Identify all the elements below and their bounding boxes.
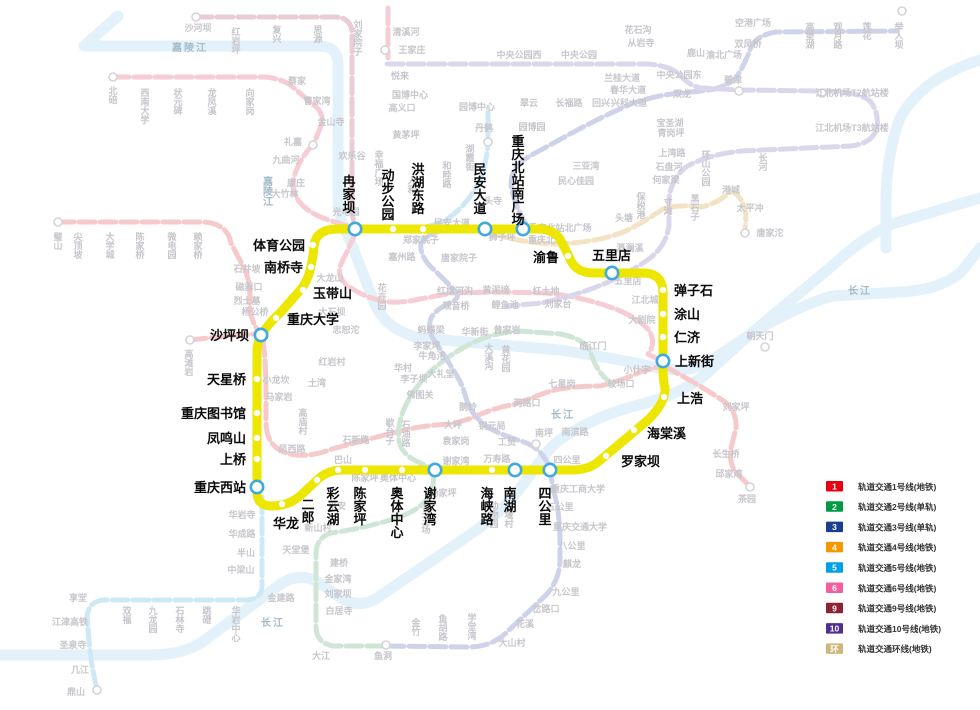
bg-station-circle (93, 686, 101, 694)
bg-station-label: 嘉州路 (387, 251, 416, 262)
bg-station-label: 半山 (237, 547, 255, 558)
loop-station-label-弹子石: 弹子石 (674, 283, 713, 298)
loop-station-label-重庆西站: 重庆西站 (194, 480, 246, 495)
bg-station-label: 翠云 (520, 98, 538, 108)
loop-interchange-dot-南湖[interactable] (509, 464, 521, 476)
legend-line-label: 轨道交通1号线(地铁) (858, 482, 937, 492)
legend-badge-number: 2 (832, 502, 837, 512)
bg-station-circle (532, 440, 540, 448)
bg-station-label: 鱼胡路 (438, 613, 448, 642)
bg-station-label: 黑石子 (689, 194, 699, 222)
bg-station-label: 大山村 (498, 637, 525, 648)
bg-station-label: 享堂 (69, 592, 87, 603)
loop-station-dot-陈家坪[interactable] (362, 467, 368, 473)
bg-station-label: 华岩寺 (228, 509, 255, 520)
loop-station-dot-奥体中心[interactable] (399, 467, 405, 473)
bg-station-circle (746, 483, 754, 491)
bg-station-label: 江北机场T2航站楼 (815, 87, 889, 98)
loop-station-dot-彩云湖[interactable] (335, 467, 341, 473)
bg-station-label: 大龙山 (316, 272, 343, 283)
loop-station-dot-仁济[interactable] (660, 334, 666, 340)
loop-station-dot-罗家坝[interactable] (603, 453, 609, 459)
loop-station-label-仁济: 仁济 (674, 330, 701, 345)
bg-station-label: 重庆交通大学 (553, 521, 607, 532)
loop-station-label-罗家坝: 罗家坝 (621, 454, 660, 469)
bg-station-label: 碧津 (723, 74, 742, 85)
bg-station-label: 鼎山 (67, 686, 85, 697)
legend-item-环: 环轨道交通环线(地铁) (826, 643, 932, 654)
bg-station-circle (382, 641, 390, 649)
bg-station-label: 金建路 (266, 592, 295, 603)
legend-badge-number: 6 (832, 583, 837, 593)
bg-station-label: 两路口 (513, 397, 540, 408)
loop-station-label-民安大道: 民安大道 (473, 162, 486, 216)
bg-station-label: 北碚 (108, 85, 117, 105)
loop-station-dot-二郎[interactable] (314, 477, 320, 483)
bg-station-label: 渝北广场 (706, 49, 742, 60)
bg-station-label: 礼嘉 (284, 136, 302, 147)
bg-station-label: 大坪 (444, 419, 462, 430)
bg-station-label: 石林寺 (174, 606, 185, 634)
bg-station-label: 从岩寺 (627, 37, 654, 48)
loop-station-label-南湖: 南湖 (503, 486, 516, 514)
bg-station-label: 高义口 (388, 102, 415, 113)
bg-station-label: 中央公园西 (496, 49, 541, 60)
loop-station-dot-渝鲁[interactable] (565, 253, 571, 259)
bg-station-label: 学堂湾 (467, 612, 476, 641)
loop-station-dot-天星桥[interactable] (254, 376, 260, 382)
bg-station-label: 国博中心 (392, 89, 428, 100)
loop-interchange-dot-沙坪坝[interactable] (255, 329, 267, 341)
loop-station-label-陈家坪: 陈家坪 (353, 486, 367, 527)
bg-station-label: 龙凤溪 (206, 87, 217, 116)
loop-station-label-冉家坝: 冉家坝 (342, 174, 356, 215)
bg-station-label: 四公里 (553, 455, 580, 465)
bg-station-label: 黄茅坪 (392, 129, 419, 140)
loop-interchange-dot-五里店[interactable] (606, 267, 618, 279)
bg-station-label: 大剧院 (628, 314, 655, 325)
bg-station-label: 璧山 (52, 231, 62, 251)
bg-station-label: 悦来 (391, 70, 410, 81)
bg-station-label: 回兴 (592, 97, 610, 108)
bg-station-label: 花石沟 (624, 24, 651, 35)
loop-station-dot-涂山[interactable] (660, 311, 666, 317)
bg-station-label: 上湾路 (658, 147, 686, 158)
bg-station-label: 九公里 (551, 586, 579, 597)
loop-station-dot-弹子石[interactable] (660, 287, 666, 293)
bg-station-circle (898, 7, 906, 15)
bg-station-label: 蔡家 (287, 75, 307, 86)
bg-station-label: 寸滩 (663, 196, 672, 216)
bg-station-label: 何家梁 (652, 174, 680, 185)
bg-station-label: 石油路 (400, 420, 411, 448)
loop-interchange-dot-上新街[interactable] (657, 355, 669, 367)
bg-station-label: 刘家坝 (324, 588, 351, 599)
bg-station-label: 红土地 (532, 285, 559, 296)
bg-station-label: 鱼洞 (374, 650, 392, 661)
legend-line-label: 轨道交通10号线(地铁) (858, 624, 941, 634)
bg-station-label: 谢家湾 (442, 455, 469, 466)
bg-station-label: 杨公桥 (241, 306, 269, 317)
bg-station-label: 港城 (722, 184, 740, 195)
bg-station-circle (735, 87, 743, 95)
bg-line1-west (58, 222, 257, 329)
bg-station-label: 鹅岭 (459, 401, 477, 412)
loop-station-dot-洪湖东路[interactable] (420, 226, 426, 232)
bg-station-label: 红岩村 (318, 356, 345, 367)
bg-station-label: 岔路口 (532, 603, 559, 614)
bg-station-label: 鹿山 (686, 47, 705, 58)
legend-line-label: 轨道交通5号线(地铁) (858, 563, 937, 573)
legend-item-2: 2轨道交通2号线(单轨) (826, 501, 937, 512)
legend-badge-number: 9 (832, 603, 837, 613)
bg-station-label: 观音桥 (442, 300, 470, 311)
loop-station-label-天星桥: 天星桥 (207, 372, 247, 387)
legend-badge-number: 环 (830, 644, 839, 654)
loop-station-dot-上浩[interactable] (661, 394, 667, 400)
bg-station-label: 袁家岗 (441, 435, 469, 446)
bg-station-label: 牛角沱 (418, 350, 445, 361)
bg-station-label: 江津高铁 (52, 616, 88, 627)
bg-station-label: 金山寺 (316, 116, 344, 127)
bg-station-circle (192, 13, 200, 21)
bg-station-label: 李子坝 (399, 373, 427, 384)
bg-station-label: 马家岩 (265, 391, 292, 402)
legend-badge-number: 1 (832, 482, 837, 492)
bg-station-label: 石盘河 (654, 161, 682, 172)
river-name-label: 长江 (551, 408, 575, 421)
bg-station-label: 观月路 (832, 22, 843, 50)
bg-station-label: 白居寺 (325, 605, 352, 616)
bg-station-label: 石新路 (341, 434, 370, 445)
bg-station-label: 南坪 (535, 427, 553, 438)
loop-station-label-华龙: 华龙 (273, 516, 299, 531)
bg-station-label: 太平冲 (735, 202, 763, 213)
bg-station-label: 头寺 (484, 195, 502, 206)
bg-station-label: 中梁山 (227, 564, 254, 575)
bg-station-label: 春华大道 (609, 84, 646, 95)
bg-station-label: 黄花园 (501, 344, 510, 373)
bg-station-label: 红岩坪 (230, 26, 240, 55)
river-name-label: 长江 (261, 616, 285, 629)
bg-station-label: 长生桥 (712, 448, 740, 459)
loop-station-dot-动步公园[interactable] (390, 226, 396, 232)
legend-line-label: 轨道交通2号线(单轨) (858, 502, 937, 512)
metro-map-canvas: 嘉陵江嘉陵江长江长江长江沙河坝红岩坪复兴思源北碚西南大学状元碑龙凤溪向家岗蔡家曹… (0, 0, 980, 710)
river-name-label: 嘉陵江 (171, 41, 208, 54)
bg-station-label: 大江 (312, 650, 330, 661)
bg-station-label: 高滩岩 (183, 348, 193, 377)
bg-station-label: 大竹林 (271, 188, 299, 199)
bg-station-label: 兰桂大道 (604, 72, 640, 83)
loop-station-dot-凤鸣山[interactable] (254, 435, 260, 441)
bg-station-label: 莲花 (862, 21, 871, 41)
bg-station-label: 八公里 (557, 541, 585, 551)
bg-station-label: 华新街 (461, 326, 488, 337)
loop-station-dot-体育公园[interactable] (310, 242, 316, 248)
loop-station-label-奥体中心: 奥体中心 (390, 486, 404, 540)
loop-station-label-二郎: 二郎 (301, 497, 314, 525)
bg-station-label: 跳磴 (202, 605, 212, 625)
bg-station-label: 九曲河 (271, 154, 299, 165)
bg-station-circle (54, 218, 62, 226)
legend-line-label: 轨道交通4号线(地铁) (858, 543, 937, 553)
bg-station-label: 花溪 (516, 618, 535, 629)
bg-station-circle (109, 73, 117, 81)
river-name-label: 长江 (848, 284, 872, 297)
bg-station-circle (309, 141, 317, 149)
bg-station-label: 宝圣湖 (656, 117, 683, 128)
bg-station-label: 天堂堡 (282, 544, 309, 555)
bg-station-label: 小龙坎 (261, 374, 290, 385)
bg-station-label: 邱家湾 (715, 468, 742, 479)
bg-station-label: 巴山 (334, 454, 352, 465)
bg-station-label: 刘家台 (544, 298, 571, 309)
legend-badge-number: 5 (832, 563, 837, 573)
bg-station-label: 环山公园 (701, 150, 710, 187)
bg-station-circle (484, 138, 492, 146)
loop-station-label-五里店: 五里店 (592, 248, 631, 263)
bg-station-label: 高堡湖 (805, 21, 814, 50)
bg-station-label: 万寿路 (482, 453, 511, 464)
bg-station-circle (741, 229, 749, 237)
bg-station-label: 双福 (121, 606, 131, 625)
bg-station-label: 复兴 (271, 24, 282, 44)
bg-station-label: 较场口 (607, 378, 634, 389)
bg-station-label: 江北机场T3航站楼 (815, 122, 889, 133)
bg-station-label: 歇台子 (384, 417, 394, 446)
legend-item-4: 4轨道交通4号线(地铁) (826, 542, 937, 553)
bg-station-label: 保税港 (635, 191, 646, 220)
loop-interchange-dot-冉家坝[interactable] (349, 223, 361, 235)
legend-badge-number: 3 (832, 522, 837, 532)
bg-station-label: 清溪河 (392, 26, 419, 37)
bg-station-label: 华成路 (228, 528, 256, 539)
bg-station-label: 圣泉寺 (59, 639, 86, 650)
legend-item-5: 5轨道交通5号线(地铁) (826, 562, 937, 573)
loop-station-label-上浩: 上浩 (677, 391, 703, 406)
loop-interchange-dot-民安大道[interactable] (479, 223, 491, 235)
legend-item-1: 1轨道交通1号线(地铁) (826, 481, 937, 492)
bg-station-label: 曹家湾 (303, 95, 330, 106)
bg-station-label: 中央公园东 (656, 69, 701, 80)
bg-station-label: 佛图关 (405, 389, 433, 400)
bg-station-circle (761, 343, 769, 351)
bg-station-label: 向家岗 (245, 87, 255, 116)
bg-station-label: 烈士墓 (233, 295, 261, 306)
loop-station-dot-玉带山[interactable] (300, 287, 306, 293)
bg-station-label: 几江 (71, 664, 89, 675)
bg-station-label: 双龙 (673, 88, 691, 99)
bg-station-circle (186, 336, 194, 344)
loop-station-dot-海峡路[interactable] (489, 467, 495, 473)
bg-station-label: 蚂蟥梁 (417, 324, 445, 335)
legend: 1轨道交通1号线(地铁)2轨道交通2号线(单轨)3轨道交通3号线(单轨)4轨道交… (826, 481, 941, 654)
bg-station-label: 丹鹤 (475, 122, 493, 133)
legend-item-10: 10轨道交通10号线(地铁) (826, 623, 941, 634)
legend-item-6: 6轨道交通6号线(地铁) (826, 583, 937, 594)
bg-station-label: 金竹 (410, 617, 421, 637)
bg-station-label: 欢乐谷 (337, 150, 366, 161)
loop-interchange-dot-谢家湾[interactable] (429, 464, 441, 476)
bg-station-label: 土湾 (308, 377, 326, 388)
loop-station-dot-华龙[interactable] (279, 501, 285, 507)
bg-station-label: 青岗坪 (657, 127, 684, 138)
legend-line-label: 轨道交通3号线(单轨) (858, 522, 937, 532)
bg-station-label: 西南大学 (140, 88, 149, 125)
bg-station-label: 长福路 (555, 97, 583, 108)
bg-station-label: 麒龙 (563, 558, 581, 569)
bg-station-label: 王家庄 (398, 44, 425, 55)
bg-station-label: 头塘 (615, 212, 633, 223)
bg-station-label: 郑家院子 (403, 234, 439, 245)
loop-station-dot-南桥寺[interactable] (308, 264, 314, 270)
loop-interchange-dot-重庆西站[interactable] (251, 481, 263, 493)
bg-station-label: 双凤桥 (734, 38, 762, 49)
loop-station-label-海峡路: 海峡路 (480, 486, 494, 527)
bg-station-label: 大溪沟 (484, 342, 494, 371)
legend-badge-number: 4 (832, 542, 837, 552)
loop-station-label-重庆图书馆: 重庆图书馆 (181, 406, 246, 421)
bg-station-label: 曾家岩 (493, 324, 520, 335)
bg-station-label: 长河 (758, 152, 768, 172)
legend-item-3: 3轨道交通3号线(单轨) (826, 522, 937, 533)
bg-station-label: 鲤鱼池 (490, 299, 518, 310)
bg-station-label: 微电园 (166, 231, 177, 260)
loop-station-label-体育公园: 体育公园 (253, 238, 305, 253)
loop-station-label-四公里: 四公里 (538, 486, 551, 527)
loop-station-label-渝鲁: 渝鲁 (533, 250, 559, 265)
loop-interchange-dot-四公里[interactable] (544, 464, 556, 476)
bg-station-label: 茶园 (737, 493, 756, 504)
bg-station-label: 和睦路 (441, 160, 452, 189)
bg-station-label: 刘家院子 (353, 19, 363, 57)
bg-station-label: 工贸 (498, 436, 516, 447)
loop-station-label-重庆大学: 重庆大学 (287, 312, 339, 327)
loop-station-dot-重庆图书馆[interactable] (254, 410, 260, 416)
bg-station-label: 唐家沱 (756, 227, 783, 238)
bg-station-label: 朝天门 (746, 330, 773, 341)
loop-station-label-玉带山: 玉带山 (313, 286, 352, 301)
bg-station-label: 康庄 (287, 177, 305, 188)
loop-station-label-洪湖东路: 洪湖东路 (411, 162, 425, 216)
legend-badge-number: 10 (830, 624, 840, 634)
bg-station-label: 黄泥塝 (482, 284, 509, 295)
loop-station-label-沙坪坝: 沙坪坝 (210, 328, 249, 343)
bg-station-label: 刘家坪 (722, 401, 749, 412)
river-path-1 (0, 336, 748, 655)
bg-station-label: 园博中心 (459, 101, 495, 112)
bg-station-label: 民心佳园 (558, 175, 594, 186)
bg-station-label: 重庆工商大学 (551, 483, 605, 494)
bg-station-label: 铜元局 (478, 420, 505, 431)
loop-station-label-上新街: 上新街 (675, 354, 714, 369)
bg-station-label: 华岩中心 (230, 605, 240, 643)
bg-station-label: 凤西路 (278, 443, 306, 454)
bg-station-label: 石井坡 (232, 263, 261, 274)
bg-station-label: 红旗河沟 (437, 285, 473, 296)
bg-station-label: 小什字 (622, 364, 650, 375)
bg-station-label: 状元碑 (173, 87, 183, 116)
legend-item-9: 9轨道交通9号线(地铁) (826, 603, 937, 614)
bg-station-label: 南滨路 (561, 426, 589, 437)
loop-station-label-凤鸣山: 凤鸣山 (207, 431, 246, 446)
loop-station-label-上桥: 上桥 (220, 452, 247, 467)
bg-station-label: 举人坝 (893, 21, 904, 50)
loop-station-label-动步公园: 动步公园 (381, 168, 394, 222)
bg-station-label: 沙河坝 (184, 22, 211, 33)
loop-station-label-涂山: 涂山 (674, 307, 700, 322)
bg-station-label: 中央公园 (561, 49, 597, 60)
loop-station-label-谢家湾: 谢家湾 (423, 486, 437, 527)
legend-line-label: 轨道交通9号线(地铁) (858, 604, 937, 614)
loop-station-dot-海棠溪[interactable] (631, 427, 637, 433)
bg-station-label: 尖顶坡 (73, 231, 83, 260)
legend-line-label: 轨道交通6号线(地铁) (858, 583, 937, 593)
bg-station-label: 高庙村 (298, 407, 307, 436)
bg-station-label: 大礼堂 (427, 368, 454, 379)
legend-line-label: 轨道交通环线(地铁) (858, 644, 932, 654)
chongqing-metro-loop-line-map: 嘉陵江嘉陵江长江长江长江沙河坝红岩坪复兴思源北碚西南大学状元碑龙凤溪向家岗蔡家曹… (0, 0, 980, 710)
bg-station-label: 临江门 (579, 340, 606, 351)
bg-station-label: 空港广场 (735, 17, 771, 28)
bg-station-label: 三亚湾 (572, 160, 599, 171)
bg-station-circle (381, 46, 389, 54)
bg-station-label: 建桥 (330, 557, 349, 568)
bg-station-label: 磁器口 (235, 281, 262, 292)
bg-station-label: 九龙园 (147, 605, 157, 634)
bg-station-label: 华村 (394, 362, 412, 373)
bg-station-label: 思源 (313, 25, 322, 44)
bg-station-label: 金家湾 (323, 573, 351, 584)
loop-station-dot-上桥[interactable] (254, 456, 260, 462)
bg-station-label: 陈家桥 (135, 231, 145, 260)
bg-station-label: 江北城 (631, 294, 658, 305)
bg-station-label: 唐家院子 (441, 252, 477, 263)
bg-station-label: 七星岗 (548, 378, 575, 389)
bg-station-label: 赖家桥 (193, 231, 203, 260)
bg-station-label: 花卉园 (377, 282, 386, 311)
bg-station-label: 园博园 (518, 121, 545, 132)
loop-station-label-彩云湖: 彩云湖 (325, 486, 339, 527)
bg-station-label: 大学城 (105, 231, 114, 260)
bg-station-label: 李家坪 (412, 340, 440, 351)
bg-station-label: 兴科大道 (611, 97, 647, 108)
loop-station-dot-重庆大学[interactable] (273, 315, 279, 321)
loop-station-label-重庆北站南广场: 重庆北站南广场 (510, 134, 524, 227)
loop-station-label-海棠溪: 海棠溪 (647, 426, 687, 441)
loop-station-label-南桥寺: 南桥寺 (264, 260, 303, 275)
